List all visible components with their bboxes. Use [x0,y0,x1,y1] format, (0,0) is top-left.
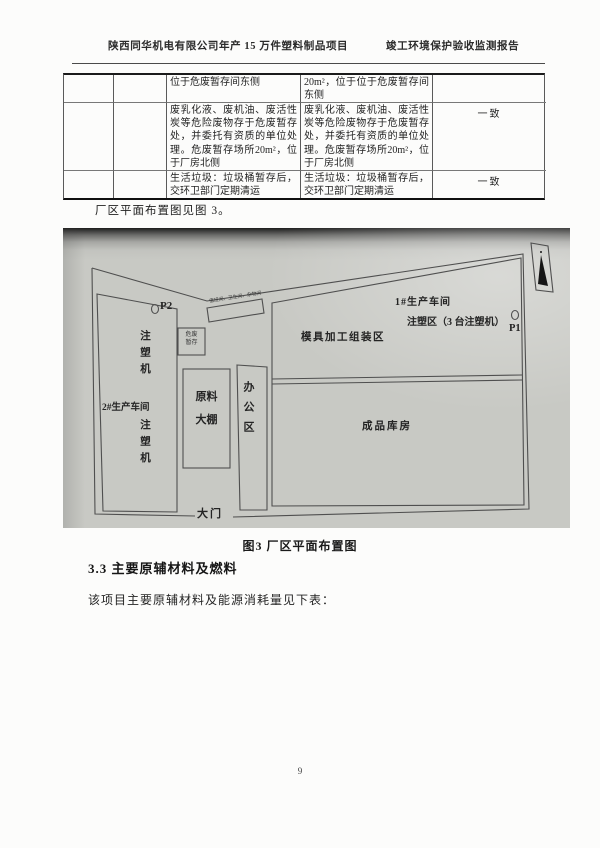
label-gate: 大门 [197,505,223,521]
label-injection-machine-upper: 注塑机 [137,330,152,380]
label-workshop1: 1#生产车间 [395,293,451,308]
site-plan-figure: P2 值班间、卫生间、杂物间 危废 暂存 1#生产车间 注塑区（3 台注塑机） … [63,228,570,528]
label-office: 办公区 [240,381,256,441]
page-number: 9 [0,766,600,776]
label-injection-area: 注塑区（3 台注塑机） [407,313,505,328]
table-cell-design: 废乳化液、废机油、废活性炭等危险废物存于危废暂存处，并委托有资质的单位处理。危废… [167,103,301,171]
section-body: 该项目主要原辅材料及能源消耗量见下表： [88,591,335,608]
label-hazwaste-line1: 危废 [178,331,205,339]
table-cell-result: 一致 [433,171,546,198]
p1-marker [512,311,519,320]
table-cell-actual: 废乳化液、废机油、废活性炭等危险废物存于危废暂存处，并委托有资质的单位处理。危废… [301,103,433,171]
table-cell-result [433,75,546,103]
label-raw-material-line2: 大棚 [183,409,230,432]
header-rule [72,63,545,64]
table-cell-actual: 生活垃圾：垃圾桶暂存后，交环卫部门定期清运 [301,171,433,198]
label-raw-material: 原料 大棚 [183,386,230,432]
label-mold-area: 模具加工组装区 [301,329,385,344]
document-page: 陕西同华机电有限公司年产 15 万件塑料制品项目 竣工环境保护验收监测报告 位于… [0,0,600,848]
header-report-title: 竣工环境保护验收监测报告 [386,38,519,53]
division-line-lower [272,380,522,384]
table-cell-empty [114,75,167,103]
figure-caption: 图3 厂区平面布置图 [0,537,600,554]
table-cell-empty [64,103,114,171]
label-finished-warehouse: 成品库房 [362,418,412,433]
label-workshop2: 2#生产车间 [102,399,150,413]
label-hazwaste-line2: 暂存 [178,339,205,347]
table-cell-result: 一致 [433,103,546,171]
table-cell-empty [114,103,167,171]
table-cell-design: 位于危废暂存间东侧 [167,75,301,103]
header-project-title: 陕西同华机电有限公司年产 15 万件塑料制品项目 [108,38,348,53]
p2-marker [152,305,159,314]
label-raw-material-line1: 原料 [183,386,230,409]
intro-text: 厂区平面布置图见图 3。 [95,202,231,218]
section-heading: 3.3 主要原辅材料及燃料 [88,558,238,577]
site-boundary [92,254,529,517]
label-p2: P2 [160,300,172,312]
comparison-table: 位于危废暂存间东侧 20m²，位于位于危废暂存间东侧 废乳化液、废机油、废活性炭… [63,73,545,200]
table-cell-empty [114,171,167,198]
division-line-upper [272,375,522,379]
label-p1: P1 [509,323,521,334]
table-cell-empty [64,171,114,198]
table-cell-actual: 20m²，位于位于危废暂存间东侧 [301,75,433,103]
label-hazwaste: 危废 暂存 [178,331,205,347]
table-cell-design: 生活垃圾：垃圾桶暂存后，交环卫部门定期清运 [167,171,301,198]
table-cell-empty [64,75,114,103]
north-arrow-icon [538,251,548,286]
label-injection-machine-lower: 注塑机 [137,419,152,469]
